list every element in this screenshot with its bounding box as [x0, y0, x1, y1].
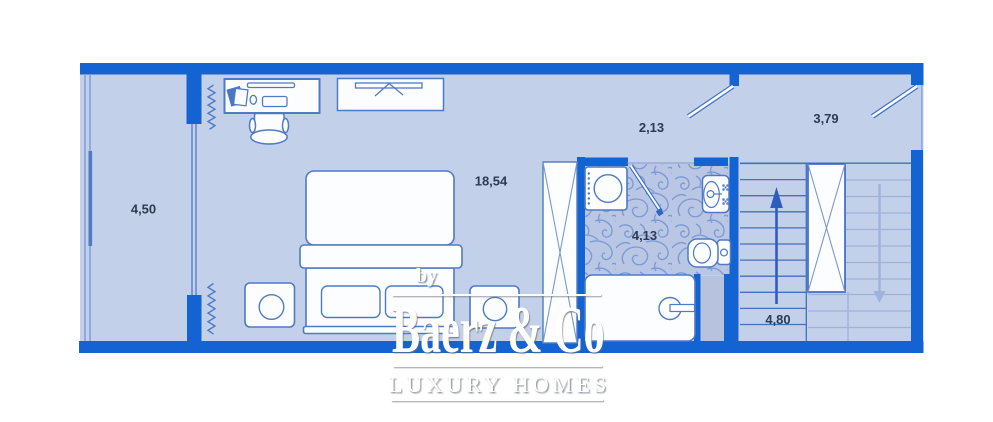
svg-text:4,80: 4,80: [765, 312, 790, 327]
svg-text:3,79: 3,79: [813, 111, 838, 126]
svg-text:4,50: 4,50: [131, 202, 156, 217]
svg-text:4,13: 4,13: [632, 228, 657, 243]
svg-text:18,54: 18,54: [475, 174, 508, 189]
svg-text:2,13: 2,13: [639, 120, 664, 135]
